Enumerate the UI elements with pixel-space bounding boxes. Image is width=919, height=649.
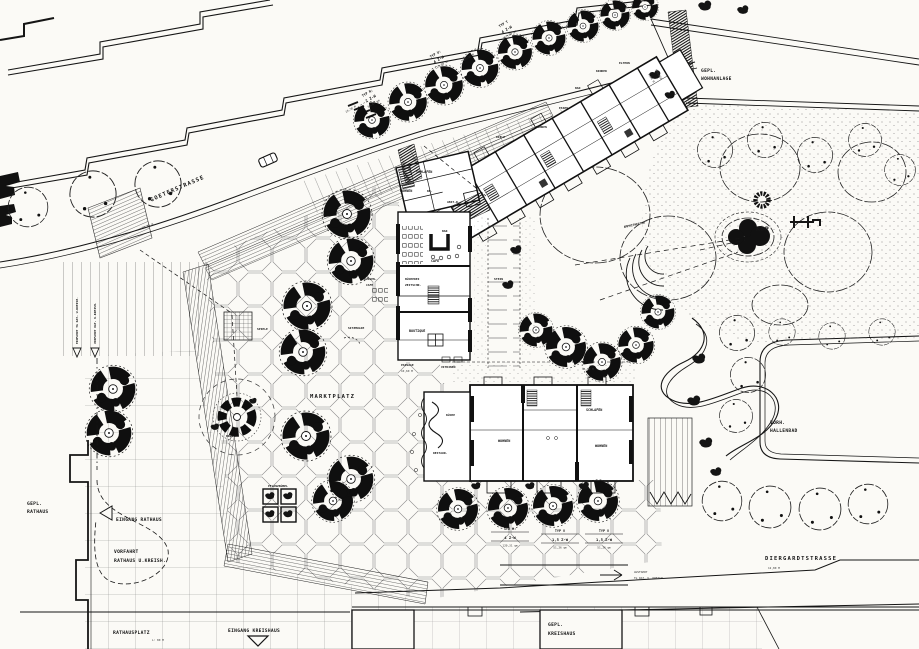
site-plan-page: GOETERSTRASSE 10,60 M DIERGARDTSTRASSE 1… xyxy=(0,0,919,649)
site-plan-drawing: GOETERSTRASSE 10,60 M DIERGARDTSTRASSE 1… xyxy=(0,0,919,649)
svg-text:TYP V: TYP V xyxy=(555,529,565,533)
svg-text:1,5 Z-W: 1,5 Z-W xyxy=(596,537,613,542)
aussen-cafe-seating xyxy=(372,288,388,306)
rathaus-label-2: RATHAUS xyxy=(27,509,48,515)
sitzen-label: SITZEN xyxy=(582,360,593,364)
room-wohnen-3: WOHNEN xyxy=(498,439,510,443)
svg-text:1,5 Z-W: 1,5 Z-W xyxy=(552,537,569,542)
vorfahrt-label-2: RATHAUS U.KREISH. xyxy=(114,558,166,564)
vorfahrt-label-1: VORFAHRT xyxy=(114,549,139,555)
wasser-label: WASSER xyxy=(757,240,768,244)
cafe-seating xyxy=(401,226,423,264)
rathausplatz-label: RATHAUSPLATZ xyxy=(113,630,150,636)
room-schlafen-2: SCHLAFEN xyxy=(586,408,602,412)
room-kinder: KINDER xyxy=(596,69,607,73)
boutique-label: BOUTIQUE xyxy=(409,329,425,333)
marktplatz-label: MARKTPLATZ xyxy=(310,394,355,400)
sitzmulde-label: SITZMULDE xyxy=(348,326,364,330)
room-wohnen-1: WOHNEN xyxy=(400,189,412,193)
stein-gravel-west xyxy=(474,215,486,365)
room-schlafen-1: SCHLAFEN xyxy=(416,170,432,174)
park-gravel-texture xyxy=(642,104,919,345)
room-wohnen-2: WOHNEN xyxy=(536,125,547,129)
svg-text:120,31 qm: 120,31 qm xyxy=(502,544,517,548)
bar-label: BAR xyxy=(442,229,448,233)
cafe-label: CAFE xyxy=(431,259,439,263)
kueche-label: KÜCHE xyxy=(446,412,455,417)
room-wohnen-4: WOHNEN xyxy=(595,444,607,448)
passage-label-1: PASSAGE xyxy=(401,363,414,367)
room-bad: BAD xyxy=(575,86,581,90)
aussencafe-label-2: CAFE xyxy=(366,283,373,287)
brunnen-label: BRUNNEN xyxy=(226,434,239,438)
room-abst: ABST-R. xyxy=(447,200,460,204)
vorfahrt-tg-label: VORFAHRT RAT- U.KREISH. xyxy=(93,302,97,344)
diergardt-dim-label: 12,80 M xyxy=(768,566,780,570)
restaurant-label: RESTAUR. xyxy=(433,451,448,455)
kreishaus-label-1: GEPL. xyxy=(548,622,563,628)
residential-block-south xyxy=(452,362,636,493)
aussencafe-label-1: AUSSEN- xyxy=(364,277,377,281)
rathausplatz-dim-label: L: 80 M xyxy=(152,638,164,642)
svg-text:51,26 qm: 51,26 qm xyxy=(597,546,611,550)
passage-label-2: 10,60 M xyxy=(401,369,413,373)
wohnanlage-label-2: WOHNANLAGE xyxy=(701,76,732,82)
west-drive-hatch xyxy=(58,262,205,356)
ausfahrt-label-2: TG RAT- U. KREISH. xyxy=(634,576,665,580)
ausfahrt-label-1: AUSFAHRT xyxy=(634,570,648,574)
stein-label: STEIN xyxy=(494,277,503,281)
kreishaus-label-2: KREISHAUS xyxy=(548,631,576,637)
einfahrt-tg-label: EINFAHRT TG RAT- U.KREISH. xyxy=(75,297,79,344)
spiele-play-grid xyxy=(224,312,252,340)
svg-text:TYP U:: TYP U: xyxy=(504,527,516,531)
eingang-rathaus-label: EINGANG RATHAUS xyxy=(116,517,162,523)
room-diele: DIELE xyxy=(496,135,505,139)
svg-text:4 Z-W: 4 Z-W xyxy=(504,535,516,540)
hallenbad-label-2: HALLENBAD xyxy=(770,428,798,434)
room-kb: KB. xyxy=(427,189,433,193)
room-essen: ESSEN xyxy=(559,106,568,110)
svg-text:TYP V: TYP V xyxy=(599,529,609,533)
street-label-diergardtstrasse: DIERGARDTSTRASSE xyxy=(765,556,837,562)
hallenbad-walk xyxy=(648,418,692,506)
vitrinen-label: VITRINEN xyxy=(441,365,456,369)
stein-path xyxy=(488,218,520,368)
spiele-label: SPIELE xyxy=(257,327,268,331)
kreishaus-wing-west xyxy=(352,610,414,649)
sitzen-dim-label: 45,60 M xyxy=(582,367,594,371)
buecherei-label-1: BÜCHEREI xyxy=(405,276,420,281)
svg-text:51,26 qm: 51,26 qm xyxy=(553,546,567,550)
kreishaus-wing-center xyxy=(540,610,622,649)
shops-stair xyxy=(428,286,439,304)
rathaus-label-1: GEPL. xyxy=(27,501,42,507)
buecherei-label-2: ZEITSCHR. xyxy=(405,283,421,287)
wohnanlage-label-1: GEPL. xyxy=(701,68,716,74)
pflanzkuebel-label: PFLANZKÜBEL xyxy=(268,483,288,488)
ksp-label: KSP xyxy=(756,225,769,233)
eingang-kreishaus-label: EINGANG KREISHAUS xyxy=(228,628,280,634)
room-eltern: ELTERN xyxy=(619,61,630,65)
hallenbad-label-1: VORH. xyxy=(770,420,785,426)
